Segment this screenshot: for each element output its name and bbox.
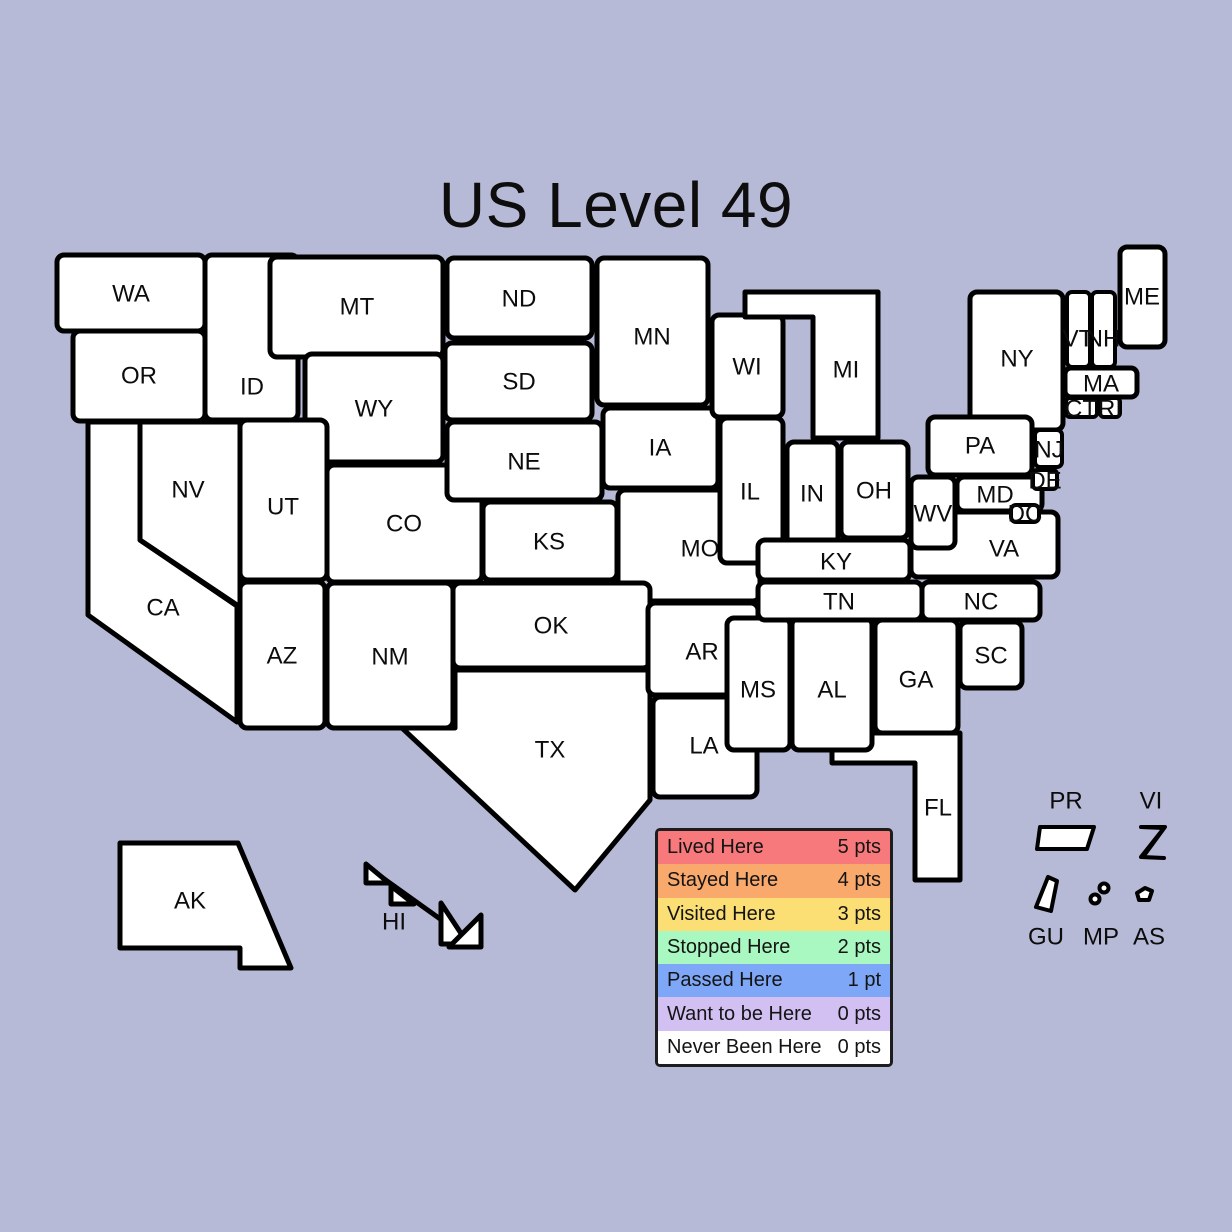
svg-text:CA: CA: [146, 595, 179, 622]
svg-text:SC: SC: [974, 643, 1007, 670]
state-wv[interactable]: WV: [911, 477, 955, 548]
svg-text:PR: PR: [1049, 788, 1082, 815]
territory-gu[interactable]: GU: [1028, 877, 1064, 951]
legend-points: 5 pts: [838, 836, 881, 859]
svg-text:GU: GU: [1028, 924, 1064, 951]
state-wi[interactable]: WI: [712, 315, 783, 417]
state-dc[interactable]: DC: [1008, 501, 1043, 528]
state-in[interactable]: IN: [787, 442, 838, 552]
us-level-map: WA OR ID MT WY CA NV UT CO AZ NM ND SD M…: [0, 0, 1232, 1232]
svg-text:MA: MA: [1083, 371, 1119, 398]
state-ny[interactable]: NY: [970, 292, 1063, 430]
svg-text:MI: MI: [833, 357, 860, 384]
svg-text:MP: MP: [1083, 924, 1119, 951]
svg-text:KS: KS: [533, 529, 565, 556]
svg-text:KY: KY: [820, 549, 852, 576]
svg-text:MN: MN: [633, 324, 670, 351]
territory-pr[interactable]: PR: [1037, 788, 1094, 850]
svg-text:NV: NV: [171, 477, 204, 504]
svg-text:GA: GA: [899, 667, 934, 694]
svg-text:DC: DC: [1008, 501, 1043, 528]
svg-text:MT: MT: [340, 294, 375, 321]
legend-points: 3 pts: [838, 903, 881, 926]
state-tn[interactable]: TN: [758, 582, 922, 620]
state-pa[interactable]: PA: [928, 417, 1032, 475]
svg-text:NE: NE: [507, 449, 540, 476]
svg-text:MO: MO: [681, 536, 720, 563]
state-ma[interactable]: MA: [1065, 368, 1137, 398]
state-de[interactable]: DE: [1028, 468, 1061, 495]
svg-text:TX: TX: [535, 737, 566, 764]
app-background: US Level 49 WA OR ID MT WY CA NV UT CO A…: [0, 0, 1232, 1232]
svg-text:LA: LA: [689, 733, 718, 760]
svg-text:UT: UT: [267, 494, 299, 521]
legend-label: Want to be Here: [667, 1003, 812, 1026]
state-ne[interactable]: NE: [447, 422, 602, 500]
state-ak[interactable]: AK: [120, 843, 291, 968]
svg-text:NH: NH: [1086, 326, 1121, 353]
legend: Lived Here5 pts Stayed Here4 pts Visited…: [655, 828, 893, 1067]
svg-text:TN: TN: [823, 589, 855, 616]
svg-text:CO: CO: [386, 511, 422, 538]
state-az[interactable]: AZ: [240, 582, 325, 728]
state-al[interactable]: AL: [792, 618, 872, 750]
state-nd[interactable]: ND: [447, 258, 592, 338]
state-nj[interactable]: NJ: [1034, 430, 1063, 467]
svg-text:WV: WV: [914, 501, 953, 528]
legend-points: 4 pts: [838, 869, 881, 892]
state-mt[interactable]: MT: [270, 257, 443, 357]
svg-text:OR: OR: [121, 363, 157, 390]
svg-text:IL: IL: [740, 479, 760, 506]
legend-row-stopped: Stopped Here2 pts: [658, 931, 890, 964]
svg-text:SD: SD: [502, 369, 535, 396]
legend-row-want: Want to be Here0 pts: [658, 997, 890, 1030]
state-ga[interactable]: GA: [875, 620, 958, 733]
state-sd[interactable]: SD: [445, 343, 592, 420]
svg-text:PA: PA: [965, 433, 995, 460]
svg-text:NY: NY: [1000, 346, 1033, 373]
state-me[interactable]: ME: [1120, 247, 1165, 347]
state-nh[interactable]: NH: [1086, 292, 1121, 367]
legend-points: 1 pt: [848, 969, 881, 992]
svg-text:OK: OK: [534, 613, 569, 640]
state-hi[interactable]: HI: [366, 864, 481, 947]
svg-text:WA: WA: [112, 281, 150, 308]
legend-points: 0 pts: [838, 1003, 881, 1026]
legend-label: Stopped Here: [667, 936, 790, 959]
state-ok[interactable]: OK: [453, 583, 650, 668]
svg-text:WY: WY: [355, 396, 394, 423]
legend-row-visited: Visited Here3 pts: [658, 898, 890, 931]
svg-text:FL: FL: [924, 795, 952, 822]
state-ms[interactable]: MS: [727, 618, 790, 750]
svg-text:NJ: NJ: [1034, 437, 1063, 464]
legend-row-never: Never Been Here0 pts: [658, 1031, 890, 1064]
svg-text:NM: NM: [371, 644, 408, 671]
svg-text:AL: AL: [817, 677, 846, 704]
state-ky[interactable]: KY: [758, 540, 910, 580]
state-ri[interactable]: RI: [1098, 396, 1122, 423]
svg-text:HI: HI: [382, 909, 406, 936]
legend-row-passed: Passed Here1 pt: [658, 964, 890, 997]
svg-text:NC: NC: [964, 589, 999, 616]
legend-points: 2 pts: [838, 936, 881, 959]
legend-label: Visited Here: [667, 903, 776, 926]
legend-label: Lived Here: [667, 836, 764, 859]
territory-mp[interactable]: MP: [1083, 884, 1119, 951]
svg-text:CT: CT: [1065, 396, 1097, 423]
state-mn[interactable]: MN: [597, 258, 708, 405]
svg-text:VI: VI: [1140, 788, 1163, 815]
legend-label: Never Been Here: [667, 1036, 822, 1059]
svg-text:RI: RI: [1098, 396, 1122, 423]
state-ut[interactable]: UT: [240, 420, 327, 580]
legend-points: 0 pts: [838, 1036, 881, 1059]
territory-vi[interactable]: VI: [1140, 788, 1165, 859]
svg-text:ND: ND: [502, 286, 537, 313]
state-sc[interactable]: SC: [960, 622, 1022, 688]
svg-text:WI: WI: [732, 354, 761, 381]
svg-text:IA: IA: [649, 435, 672, 462]
svg-text:ME: ME: [1124, 284, 1160, 311]
svg-text:MS: MS: [740, 677, 776, 704]
state-nm[interactable]: NM: [327, 583, 453, 728]
state-or[interactable]: OR: [73, 331, 205, 421]
state-ks[interactable]: KS: [483, 502, 617, 580]
state-ct[interactable]: CT: [1065, 396, 1097, 423]
legend-row-stayed: Stayed Here4 pts: [658, 864, 890, 897]
state-ia[interactable]: IA: [603, 408, 718, 488]
legend-row-lived: Lived Here5 pts: [658, 831, 890, 864]
state-nc[interactable]: NC: [922, 582, 1040, 620]
svg-text:AZ: AZ: [267, 643, 298, 670]
state-oh[interactable]: OH: [841, 442, 908, 538]
svg-text:AR: AR: [685, 639, 718, 666]
svg-text:IN: IN: [800, 481, 824, 508]
legend-label: Passed Here: [667, 969, 783, 992]
svg-text:AS: AS: [1133, 924, 1165, 951]
svg-text:AK: AK: [174, 888, 206, 915]
svg-text:ID: ID: [240, 374, 264, 401]
svg-text:VA: VA: [989, 536, 1019, 563]
territory-as[interactable]: AS: [1133, 888, 1165, 951]
svg-text:OH: OH: [856, 478, 892, 505]
legend-label: Stayed Here: [667, 869, 778, 892]
state-wa[interactable]: WA: [57, 255, 205, 331]
svg-text:DE: DE: [1028, 468, 1061, 495]
